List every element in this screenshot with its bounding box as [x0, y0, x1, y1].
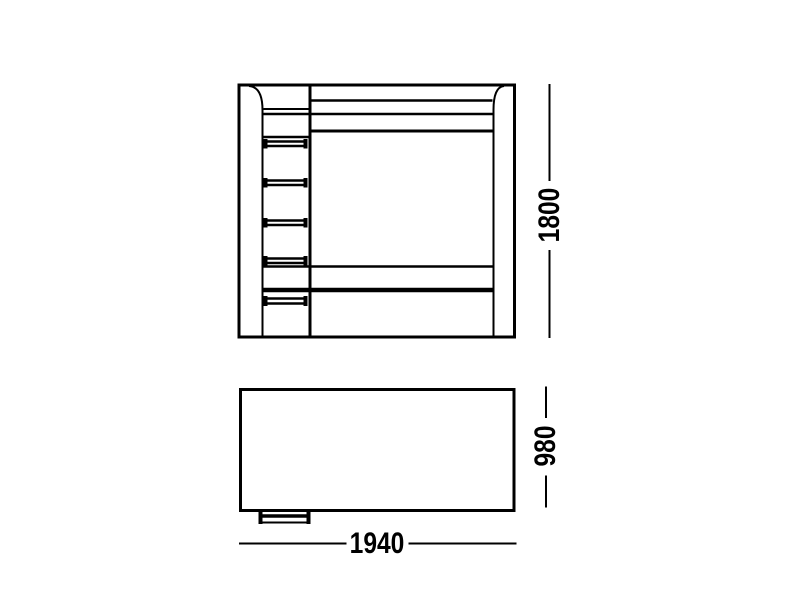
ladder-rung-4: [266, 256, 306, 266]
plan-outline: [241, 390, 515, 511]
ladder-rung-3: [266, 218, 306, 228]
dimension-label-depth: 980: [531, 425, 561, 466]
dimension-label-width: 1940: [350, 529, 405, 559]
right-post-inner-edge: [494, 86, 505, 337]
bunk-bed-technical-drawing: [0, 0, 800, 600]
drawing-canvas: 1800 980 1940: [0, 0, 800, 600]
plan-view: [241, 390, 515, 525]
front-view: [239, 85, 515, 337]
dimension-label-height: 1800: [535, 188, 565, 243]
ladder-rung-1: [266, 139, 306, 149]
ladder-rung-2: [266, 178, 306, 188]
ladder-rung-5: [266, 296, 306, 306]
drawing-lines: [239, 84, 550, 544]
dimension-lines: [239, 84, 550, 544]
left-post-inner-edge: [249, 86, 263, 337]
